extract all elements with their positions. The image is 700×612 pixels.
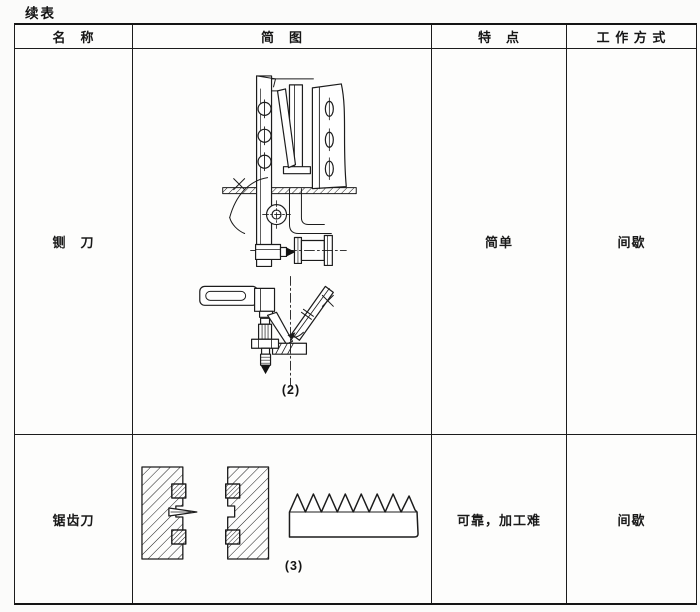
header-diagram: 简 图 bbox=[133, 25, 432, 49]
tool-comparison-table: 名 称 简 图 特 点 工 作 方 式 铡 刀 bbox=[14, 23, 697, 605]
row2-name-cell: 锯齿刀 bbox=[15, 435, 133, 603]
row1-diagram-number-label: (2) bbox=[273, 383, 309, 397]
guillotine-cutter-diagram-icon bbox=[133, 49, 431, 434]
row2-working-mode-cell: 间歇 bbox=[567, 435, 696, 603]
header-working-mode: 工 作 方 式 bbox=[567, 25, 696, 49]
header-name: 名 称 bbox=[15, 25, 133, 49]
row1-features-cell: 简单 bbox=[432, 49, 567, 435]
row2-diagram-number-label: (3) bbox=[276, 559, 312, 573]
serrated-blade-diagram-icon bbox=[133, 435, 431, 603]
row2-features-cell: 可靠，加工难 bbox=[432, 435, 567, 603]
row1-diagram-cell: (2) bbox=[133, 49, 432, 435]
row1-working-mode-cell: 间歇 bbox=[567, 49, 696, 435]
header-features: 特 点 bbox=[432, 25, 567, 49]
document-page: 续表 名 称 简 图 特 点 工 作 方 式 铡 刀 bbox=[0, 0, 700, 612]
row1-name-cell: 铡 刀 bbox=[15, 49, 133, 435]
continued-table-label: 续表 bbox=[25, 2, 56, 22]
row2-diagram-cell: (3) bbox=[133, 435, 432, 603]
